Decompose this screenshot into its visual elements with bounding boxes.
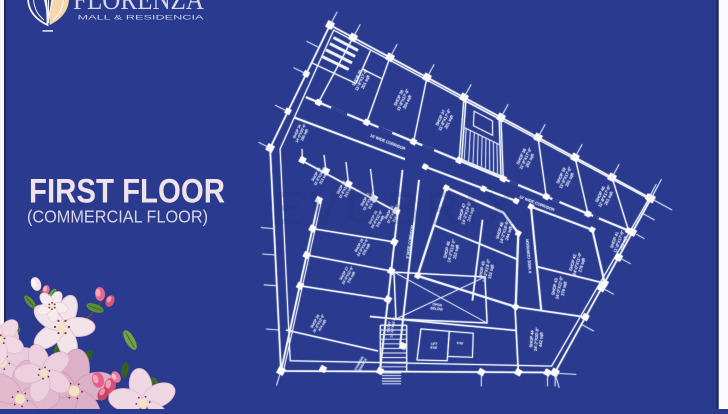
svg-text:LIFT8′X8′: LIFT8′X8′ bbox=[430, 342, 438, 350]
svg-text:MALL & RESIDENCIA: MALL & RESIDENCIA bbox=[78, 16, 204, 22]
svg-text:FIRST FLOOR: FIRST FLOOR bbox=[29, 173, 225, 211]
svg-text:EVOBRIX: EVOBRIX bbox=[271, 182, 520, 234]
svg-text:(COMMERCIAL FLOOR): (COMMERCIAL FLOOR) bbox=[27, 207, 208, 227]
svg-text:5′X8′: 5′X8′ bbox=[457, 341, 464, 345]
svg-text:FLORENZA: FLORENZA bbox=[73, 0, 204, 16]
